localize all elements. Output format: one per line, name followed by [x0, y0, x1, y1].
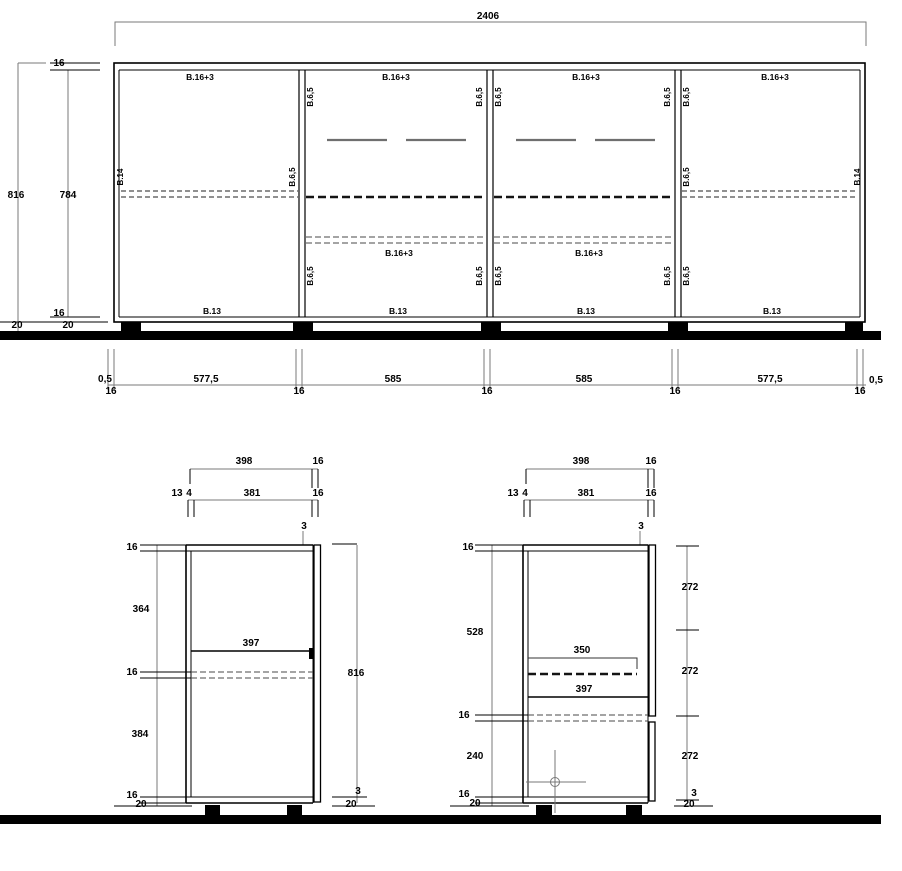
dim-label: 13	[171, 489, 182, 499]
panel-code-label: B.6,5	[289, 167, 297, 186]
dim-label: 381	[244, 489, 261, 499]
dim-label: 16	[312, 489, 323, 499]
dim-label: 13	[507, 489, 518, 499]
sb-feet-and-floor	[0, 805, 881, 824]
panel-code-label: B.14	[854, 169, 862, 186]
dim-label: 4	[522, 489, 528, 499]
dim-label: 16	[105, 387, 116, 397]
dim-plinth: 20	[11, 321, 22, 331]
panel-code-label: B.16+3	[575, 249, 603, 258]
foot	[845, 322, 863, 331]
foot	[121, 322, 141, 331]
dim-label: 398	[236, 457, 253, 467]
flap-dim-bracket	[528, 658, 637, 669]
panel-code-label: B.6,5	[683, 167, 691, 186]
dim-label: 16	[481, 387, 492, 397]
panel-code-label: B.16+3	[385, 249, 413, 258]
dim-label: 16	[126, 668, 137, 678]
panel-code-label: B.13	[763, 307, 781, 316]
door-panel	[649, 545, 656, 716]
panel-code-label: B.6,5	[307, 87, 315, 106]
foot	[205, 805, 220, 815]
dim-label: 585	[385, 375, 402, 385]
sb-tick-lines	[450, 469, 713, 806]
dim-label: 16	[312, 457, 323, 467]
dim-label: 397	[243, 639, 260, 649]
panel-code-label: B.6,5	[307, 266, 315, 285]
dim-label: 16	[458, 711, 469, 721]
dim-label: 16	[126, 543, 137, 553]
door-panel	[649, 722, 655, 801]
fe-dashed-lines	[121, 191, 858, 243]
dim-label: 3	[301, 522, 307, 532]
dim-label: 816	[348, 669, 365, 679]
panel-code-label: B.6,5	[664, 266, 672, 285]
sa-carcass	[186, 545, 321, 803]
dim-label: 3	[638, 522, 644, 532]
foot	[536, 805, 552, 815]
dim-bottom-thickness: 16	[53, 309, 64, 319]
sa-dashed-lines	[191, 672, 313, 678]
dim-label: 272	[682, 583, 699, 593]
dim-label: 398	[573, 457, 590, 467]
foot	[668, 322, 688, 331]
shelf-edge-mark	[309, 648, 314, 659]
panel-code-label: B.14	[117, 169, 125, 186]
dim-label: 381	[578, 489, 595, 499]
dim-label: 16	[669, 387, 680, 397]
dim-label: 272	[682, 752, 699, 762]
panel-code-label: B.16+3	[382, 73, 410, 82]
dim-label: 20	[135, 800, 146, 810]
panel-code-label: B.13	[203, 307, 221, 316]
panel-code-label: B.6,5	[683, 87, 691, 106]
panel-code-label: B.6,5	[495, 87, 503, 106]
dim-height-total: 816	[8, 191, 25, 201]
dim-height-internal: 784	[60, 191, 77, 201]
dim-label: 16	[462, 543, 473, 553]
panel-code-label: B.6,5	[683, 266, 691, 285]
foot	[287, 805, 302, 815]
fe-carcass	[114, 63, 865, 322]
dim-label: 240	[467, 752, 484, 762]
foot	[293, 322, 313, 331]
panel-code-label: B.6,5	[495, 266, 503, 285]
dim-label: 0,5	[869, 376, 883, 386]
foot	[626, 805, 642, 815]
dim-plinth: 20	[62, 321, 73, 331]
panel-code-label: B.6,5	[664, 87, 672, 106]
dim-label: 20	[683, 800, 694, 810]
dim-label: 364	[133, 605, 150, 615]
panel-code-label: B.6,5	[476, 266, 484, 285]
dim-label: 0,5	[98, 375, 112, 385]
dim-label: 272	[682, 667, 699, 677]
panel-code-label: B.13	[577, 307, 595, 316]
dim-label: 20	[469, 799, 480, 809]
dim-label: 350	[574, 646, 591, 656]
sb-dimension-lines	[492, 469, 687, 806]
dim-label: 16	[458, 790, 469, 800]
dim-label: 528	[467, 628, 484, 638]
dim-label: 4	[186, 489, 192, 499]
dim-label: 16	[854, 387, 865, 397]
floor-line	[0, 331, 881, 340]
sa-feet	[205, 805, 302, 815]
panel-code-label: B.13	[389, 307, 407, 316]
fe-feet-and-floor	[0, 322, 881, 340]
floor-line	[0, 815, 881, 824]
door-panel	[314, 545, 321, 802]
dim-label: 3	[355, 787, 361, 797]
dim-label: 3	[691, 789, 697, 799]
dim-label: 20	[345, 800, 356, 810]
panel-code-label: B.6,5	[476, 87, 484, 106]
panel-code-label: B.16+3	[186, 73, 214, 82]
dim-label: 16	[645, 457, 656, 467]
dim-label: 16	[293, 387, 304, 397]
dim-overall-width: 2406	[477, 12, 499, 22]
dim-top-thickness: 16	[53, 59, 64, 69]
drawing-linework	[0, 0, 902, 871]
panel-code-label: B.16+3	[572, 73, 600, 82]
foot	[481, 322, 501, 331]
dim-label: 397	[576, 685, 593, 695]
dim-label: 577,5	[193, 375, 218, 385]
cabinet-technical-drawing: 2406 816 784 16 16 20 20 B.16+3 B.16+3 B…	[0, 0, 902, 871]
dim-label: 577,5	[757, 375, 782, 385]
panel-code-label: B.16+3	[761, 73, 789, 82]
dim-label: 384	[132, 730, 149, 740]
dim-label: 16	[645, 489, 656, 499]
dim-label: 585	[576, 375, 593, 385]
